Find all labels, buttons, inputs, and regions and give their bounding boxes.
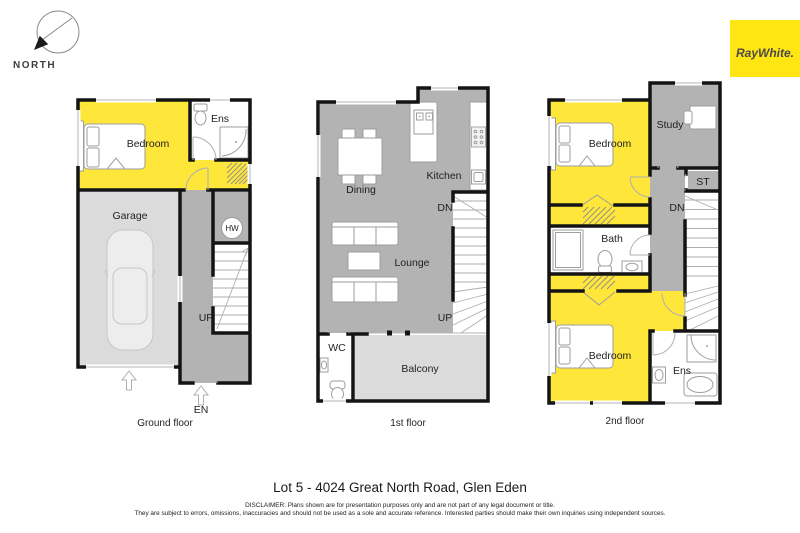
- room-label-bedroom-rear: Bedroom: [589, 350, 632, 362]
- floor-plan-first: Dining Kitchen Lounge DN UP WC Balcony 1…: [300, 80, 520, 430]
- room-label-bedroom-front: Bedroom: [589, 138, 632, 150]
- floor-plan-second: Bedroom Study ST DN Bath Bedroom Ens 2nd…: [535, 78, 735, 428]
- stairs-icon: [213, 248, 250, 329]
- second-vestibule-area: [650, 291, 685, 331]
- wc-fixtures-icon: [320, 358, 345, 401]
- north-needle: [34, 36, 48, 50]
- disclaimer-line-1: DISCLAIMER: Plans shown are for presenta…: [0, 502, 800, 510]
- stair-label-up: UP: [199, 312, 214, 324]
- stair-label-dn: DN: [437, 202, 452, 214]
- brand-name: RayWhite.: [736, 46, 794, 60]
- shower-icon: [220, 127, 248, 158]
- bed-icon: [551, 321, 613, 373]
- room-label-kitchen: Kitchen: [426, 170, 461, 182]
- second-hall-area: [650, 168, 685, 291]
- bath-fixtures-icon: [553, 230, 642, 273]
- garage-entry-arrow-icon: [122, 371, 136, 390]
- entry-label-en: EN: [194, 404, 209, 416]
- footer: Lot 5 - 4024 Great North Road, Glen Eden…: [0, 480, 800, 518]
- room-label-bedroom: Bedroom: [127, 138, 170, 150]
- room-label-balcony: Balcony: [401, 363, 439, 375]
- toilet-icon: [194, 104, 207, 125]
- sink-icon: [472, 170, 486, 184]
- ground-corridor-area: [180, 190, 213, 383]
- room-label-wc: WC: [328, 342, 346, 354]
- room-label-lounge: Lounge: [394, 257, 429, 269]
- room-label-study: Study: [657, 119, 685, 131]
- stair-label-up: UP: [438, 312, 453, 324]
- slider-jamb-icon: [387, 331, 392, 336]
- disclaimer-line-2: They are subject to errors, omissions, i…: [0, 510, 800, 518]
- stairs-icon: [685, 196, 718, 331]
- room-label-ens: Ens: [673, 365, 691, 377]
- room-label-garage: Garage: [112, 210, 147, 222]
- room-label-ens: Ens: [211, 113, 229, 125]
- stairs-icon: [453, 196, 488, 333]
- main-entry-arrow-icon: [194, 386, 208, 405]
- caption-ground-floor: Ground floor: [137, 418, 193, 429]
- caption-second-floor: 2nd floor: [606, 416, 646, 427]
- compass-label: NORTH: [13, 60, 56, 71]
- plan-title: Lot 5 - 4024 Great North Road, Glen Eden: [0, 480, 800, 495]
- slider-jamb-icon: [405, 331, 410, 336]
- stair-label-dn: DN: [669, 202, 684, 214]
- room-label-bath: Bath: [601, 233, 623, 245]
- room-label-dining: Dining: [346, 184, 376, 196]
- brand-logo: RayWhite.: [730, 20, 800, 77]
- ground-entry-area: [213, 333, 250, 383]
- compass-icon: NORTH: [12, 8, 108, 76]
- cooktop-icon: [472, 127, 486, 147]
- caption-first-floor: 1st floor: [390, 418, 426, 429]
- room-label-hw: HW: [225, 224, 239, 233]
- floor-plan-ground: HW Bedroom Ens Garage UP EN Ground floor: [60, 80, 280, 430]
- car-icon: [105, 230, 155, 350]
- floorplan-page: NORTH RayWhite.: [0, 0, 800, 533]
- room-label-st: ST: [696, 176, 710, 188]
